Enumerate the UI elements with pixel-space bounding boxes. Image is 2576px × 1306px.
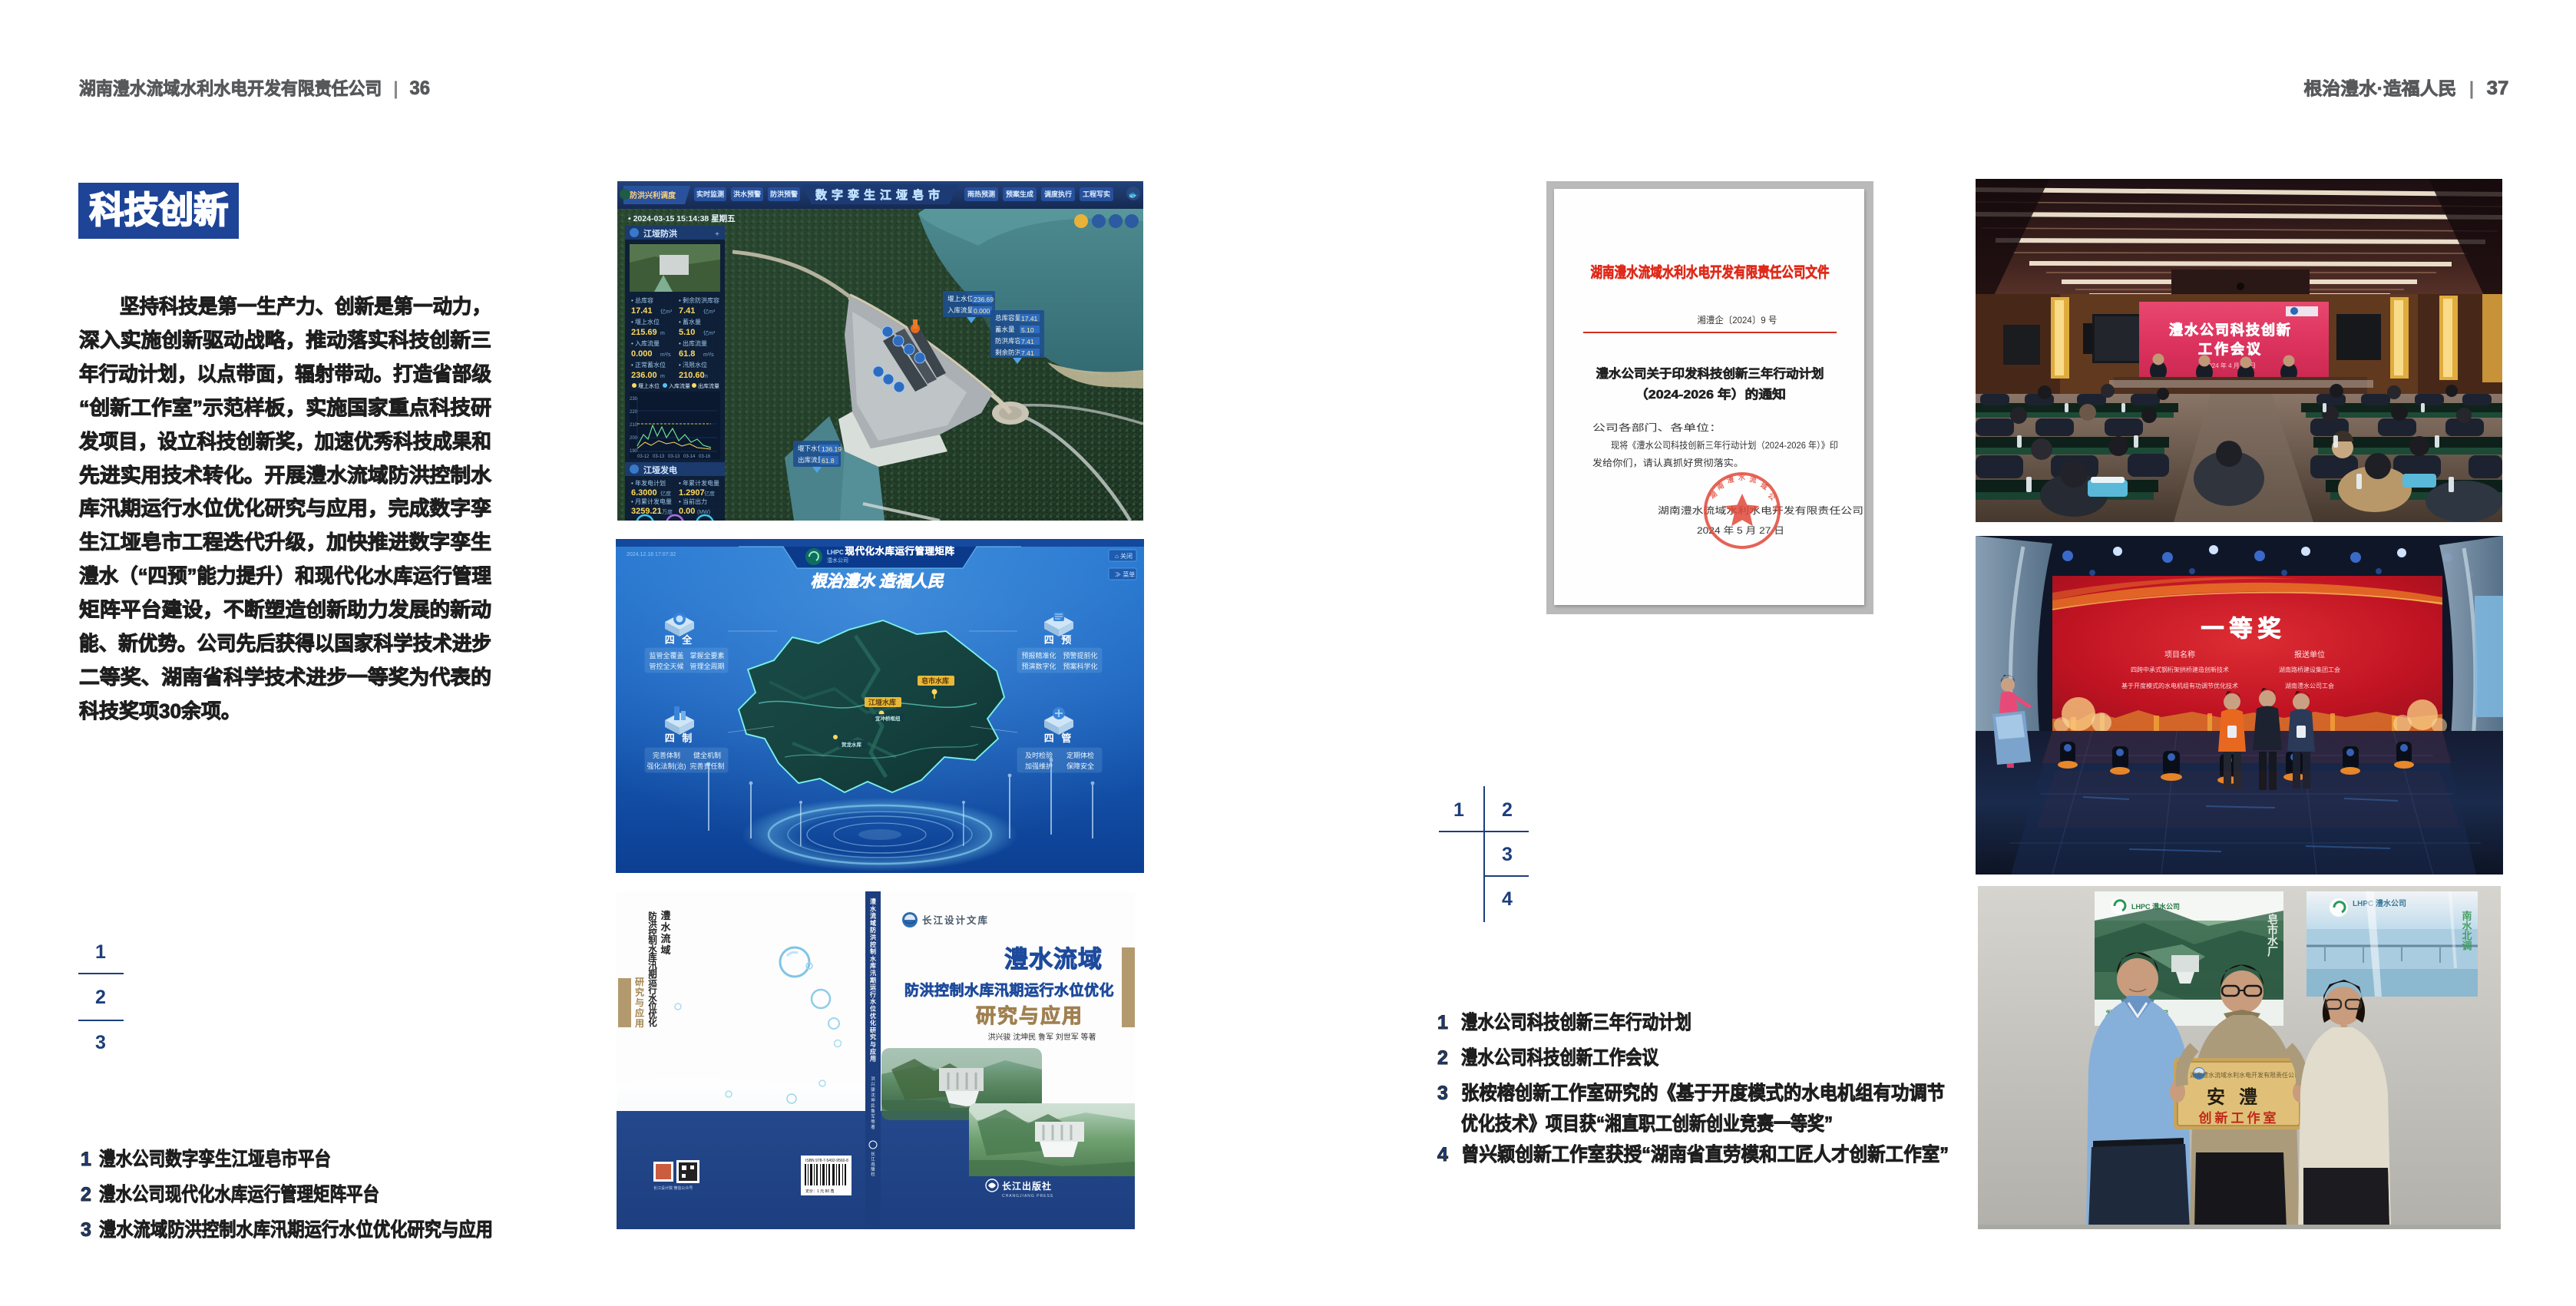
svg-text:预案生成: 预案生成 — [1006, 190, 1033, 198]
svg-text:研究与应用: 研究与应用 — [976, 1004, 1083, 1027]
svg-text:LHPC 澧水公司: LHPC 澧水公司 — [2131, 902, 2180, 911]
svg-text:长江设计文库: 长江设计文库 — [922, 914, 989, 926]
svg-text:堰上水位: 堰上水位 — [638, 382, 660, 389]
svg-text:1.2907: 1.2907 — [679, 488, 705, 498]
svg-text:数字孪生江垭皂市: 数字孪生江垭皂市 — [815, 188, 944, 202]
svg-text:190: 190 — [630, 449, 638, 454]
svg-text:四跨中承式钢桁架拱桥建造创新技术: 四跨中承式钢桁架拱桥建造创新技术 — [2131, 666, 2229, 673]
svg-text:215.69: 215.69 — [631, 328, 657, 337]
svg-text:236.00: 236.00 — [631, 371, 657, 380]
svg-text:• 当前出力: • 当前出力 — [679, 498, 707, 505]
svg-text:防洪库容: 防洪库容 — [995, 337, 1022, 345]
svg-text:• 汛限水位: • 汛限水位 — [679, 361, 707, 369]
svg-text:江垭水库: 江垭水库 — [868, 698, 896, 706]
svg-text:6.3000: 6.3000 — [631, 488, 657, 498]
svg-text:澧水流域防洪控制水库汛期运行水位优化研究与应用: 澧水流域防洪控制水库汛期运行水位优化研究与应用 — [869, 898, 877, 1063]
svg-text:蓄水量: 蓄水量 — [995, 326, 1015, 333]
svg-text:及时检验: 及时检验 — [1025, 751, 1053, 759]
svg-text:亿m³: 亿m³ — [703, 308, 716, 315]
svg-text:亿m³: 亿m³ — [703, 329, 716, 336]
svg-text:强化法制(治): 强化法制(治) — [647, 762, 686, 770]
svg-text:• 月累计发电量: • 月累计发电量 — [631, 498, 672, 505]
svg-text:完善责任制: 完善责任制 — [689, 762, 724, 770]
svg-text:7.41: 7.41 — [1021, 349, 1034, 357]
svg-text:四 制: 四 制 — [665, 732, 695, 744]
svg-text:预演数字化: 预演数字化 — [1021, 662, 1056, 670]
svg-text:万度: 万度 — [662, 508, 673, 515]
svg-text:136.19: 136.19 — [822, 445, 842, 453]
svg-text:03-13: 03-13 — [653, 455, 665, 459]
svg-text:定价：1 元 80 角: 定价：1 元 80 角 — [805, 1189, 835, 1194]
svg-text:236.69: 236.69 — [974, 296, 994, 303]
svg-text:四 全: 四 全 — [665, 634, 695, 646]
svg-text:出库流量: 出库流量 — [698, 382, 719, 389]
svg-text:完善体制: 完善体制 — [653, 751, 680, 759]
svg-text:监管全覆盖: 监管全覆盖 — [649, 651, 683, 660]
svg-text:210.60: 210.60 — [679, 371, 705, 380]
svg-text:03-12: 03-12 — [637, 455, 650, 459]
svg-text:LHPC 澧水公司: LHPC 澧水公司 — [2353, 898, 2406, 908]
svg-text:预报精准化: 预报精准化 — [1021, 651, 1056, 660]
svg-text:220: 220 — [630, 410, 638, 415]
svg-text:定期体检: 定期体检 — [1066, 751, 1094, 759]
svg-text:m: m — [660, 374, 665, 379]
svg-text:0.00: 0.00 — [679, 507, 695, 516]
svg-text:南水北调: 南水北调 — [2461, 910, 2472, 951]
svg-text:m³/s: m³/s — [703, 352, 714, 358]
svg-text:流: 流 — [1749, 474, 1758, 484]
svg-text:安澧: 安澧 — [2207, 1086, 2271, 1108]
svg-text:工程写实: 工程写实 — [1083, 190, 1110, 198]
svg-text:湖南路桥建设集团工会: 湖南路桥建设集团工会 — [2279, 666, 2340, 673]
svg-text:加强维护: 加强维护 — [1025, 762, 1053, 770]
svg-text:一等奖: 一等奖 — [2201, 616, 2287, 642]
svg-text:防洪预警: 防洪预警 — [770, 190, 798, 198]
svg-text:防洪兴利调度: 防洪兴利调度 — [630, 190, 676, 200]
svg-text:⌂ 关闭: ⌂ 关闭 — [1115, 552, 1133, 560]
svg-text:工作会议: 工作会议 — [2198, 341, 2263, 357]
svg-text:亿度: 亿度 — [660, 490, 671, 497]
svg-text:贺龙水库: 贺龙水库 — [841, 741, 862, 748]
svg-text:堰上水位: 堰上水位 — [947, 295, 974, 303]
svg-text:m³/s: m³/s — [660, 352, 671, 358]
svg-text:宜冲桥枢纽: 宜冲桥枢纽 — [875, 715, 901, 722]
svg-text:防洪控制水库汛期运行水位优化: 防洪控制水库汛期运行水位优化 — [647, 911, 657, 1028]
svg-text:17.41: 17.41 — [631, 306, 653, 316]
svg-text:ISBN 978-7-5492-9560-8: ISBN 978-7-5492-9560-8 — [805, 1159, 848, 1163]
svg-text:澧水流域: 澧水流域 — [1004, 946, 1103, 973]
svg-text:CHANGJIANG PRESS: CHANGJIANG PRESS — [1002, 1194, 1053, 1199]
svg-text:预警提前化: 预警提前化 — [1063, 651, 1097, 660]
svg-text:5.10: 5.10 — [1021, 326, 1034, 334]
svg-text:雨热预测: 雨热预测 — [967, 190, 995, 198]
svg-text:m: m — [660, 331, 665, 336]
svg-text:报送单位: 报送单位 — [2294, 650, 2325, 660]
svg-text:7.41: 7.41 — [1021, 338, 1034, 346]
svg-text:湖南澧水公司工会: 湖南澧水公司工会 — [2285, 682, 2334, 689]
svg-text:🐟: 🐟 — [1128, 190, 1139, 200]
svg-text:• 蓄水量: • 蓄水量 — [679, 318, 701, 326]
svg-text:长江出版社: 长江出版社 — [871, 1151, 875, 1177]
svg-text:03-16: 03-16 — [699, 455, 711, 459]
svg-text:亿m³: 亿m³ — [660, 308, 673, 315]
svg-text:+: + — [715, 230, 719, 239]
svg-text:澧水公司: 澧水公司 — [827, 557, 848, 564]
svg-text:61.8: 61.8 — [822, 457, 835, 465]
svg-text:亿度: 亿度 — [704, 490, 715, 497]
svg-text:• 年累计发电量: • 年累计发电量 — [679, 479, 719, 487]
svg-text:0.000: 0.000 — [974, 307, 990, 315]
svg-text:管控全天候: 管控全天候 — [649, 662, 683, 670]
svg-text:210: 210 — [630, 423, 638, 428]
svg-text:健全机制: 健全机制 — [693, 751, 721, 759]
svg-text:四 管: 四 管 — [1044, 732, 1074, 744]
svg-text:0.000: 0.000 — [631, 349, 653, 359]
svg-text:230: 230 — [630, 397, 638, 402]
svg-text:基于开度模式的水电机组有功调节优化技术: 基于开度模式的水电机组有功调节优化技术 — [2121, 682, 2238, 689]
svg-text:管理全周期: 管理全周期 — [689, 662, 724, 670]
svg-text:澧水流域: 澧水流域 — [660, 910, 671, 956]
svg-text:湖南澧水流域水利水电开发有限责任公司: 湖南澧水流域水利水电开发有限责任公司 — [2190, 1071, 2300, 1079]
svg-text:项目名称: 项目名称 — [2164, 650, 2195, 660]
svg-text:LHPC: LHPC — [827, 549, 844, 556]
svg-text:洪水预警: 洪水预警 — [733, 190, 761, 198]
svg-text:2024.12.18 17:07:32: 2024.12.18 17:07:32 — [627, 552, 676, 557]
svg-text:• 正常蓄水位: • 正常蓄水位 — [631, 361, 666, 369]
svg-text:03-14: 03-14 — [683, 455, 696, 459]
svg-text:洪兴骏沈坤民鲁军等著: 洪兴骏沈坤民鲁军等著 — [871, 1076, 875, 1130]
svg-text:创新工作室: 创新工作室 — [2198, 1110, 2280, 1126]
svg-text:• 剩余防洪库容: • 剩余防洪库容 — [679, 296, 719, 304]
svg-text:入库流量: 入库流量 — [669, 382, 690, 389]
svg-text:调度执行: 调度执行 — [1044, 190, 1072, 198]
svg-text:• 总库容: • 总库容 — [631, 296, 653, 304]
svg-text:洪兴骏 沈坤民 鲁军 刘世军 等著: 洪兴骏 沈坤民 鲁军 刘世军 等著 — [987, 1032, 1096, 1042]
svg-text:防洪控制水库汛期运行水位优化: 防洪控制水库汛期运行水位优化 — [904, 981, 1114, 999]
svg-text:澧水公司科技创新: 澧水公司科技创新 — [2169, 322, 2292, 338]
svg-text:江垭防洪: 江垭防洪 — [643, 228, 677, 239]
svg-text:四 预: 四 预 — [1044, 634, 1074, 646]
svg-text:总库容量: 总库容量 — [995, 314, 1022, 322]
svg-text:长江出版社: 长江出版社 — [1002, 1180, 1052, 1192]
svg-text:皂市水厂: 皂市水厂 — [2267, 913, 2279, 957]
svg-text:长江设计院 微信公众号: 长江设计院 微信公众号 — [653, 1185, 693, 1191]
svg-text:61.8: 61.8 — [679, 349, 695, 359]
svg-text:皂市水库: 皂市水库 — [921, 676, 949, 685]
svg-text:≫ 菜单: ≫ 菜单 — [1115, 570, 1135, 578]
svg-text:• 年发电计划: • 年发电计划 — [631, 479, 666, 487]
svg-text:• 出库流量: • 出库流量 — [679, 339, 707, 347]
svg-text:03-13: 03-13 — [668, 455, 680, 459]
svg-text:• 2024-03-15 15:14:38 星期五: • 2024-03-15 15:14:38 星期五 — [628, 213, 736, 223]
svg-text:m: m — [703, 374, 708, 379]
svg-text:现代化水库运行管理矩阵: 现代化水库运行管理矩阵 — [845, 545, 954, 557]
svg-text:研究与应用: 研究与应用 — [634, 977, 644, 1029]
svg-text:入库流量: 入库流量 — [947, 306, 974, 314]
svg-text:实时监测: 实时监测 — [696, 190, 724, 198]
svg-text:7.41: 7.41 — [679, 306, 695, 316]
svg-text:保障安全: 保障安全 — [1066, 762, 1094, 770]
svg-text:根治澧水 造福人民: 根治澧水 造福人民 — [810, 572, 944, 590]
svg-text:17.41: 17.41 — [1021, 315, 1038, 322]
svg-text:5.10: 5.10 — [679, 328, 695, 337]
svg-text:预案科学化: 预案科学化 — [1063, 662, 1097, 670]
svg-text:水: 水 — [1738, 473, 1746, 481]
svg-text:• 入库流量: • 入库流量 — [631, 339, 660, 347]
svg-text:200: 200 — [630, 436, 638, 441]
svg-text:掌握全要素: 掌握全要素 — [689, 651, 724, 660]
svg-text:• 堰上水位: • 堰上水位 — [631, 318, 660, 326]
svg-text:江垭发电: 江垭发电 — [643, 465, 677, 475]
